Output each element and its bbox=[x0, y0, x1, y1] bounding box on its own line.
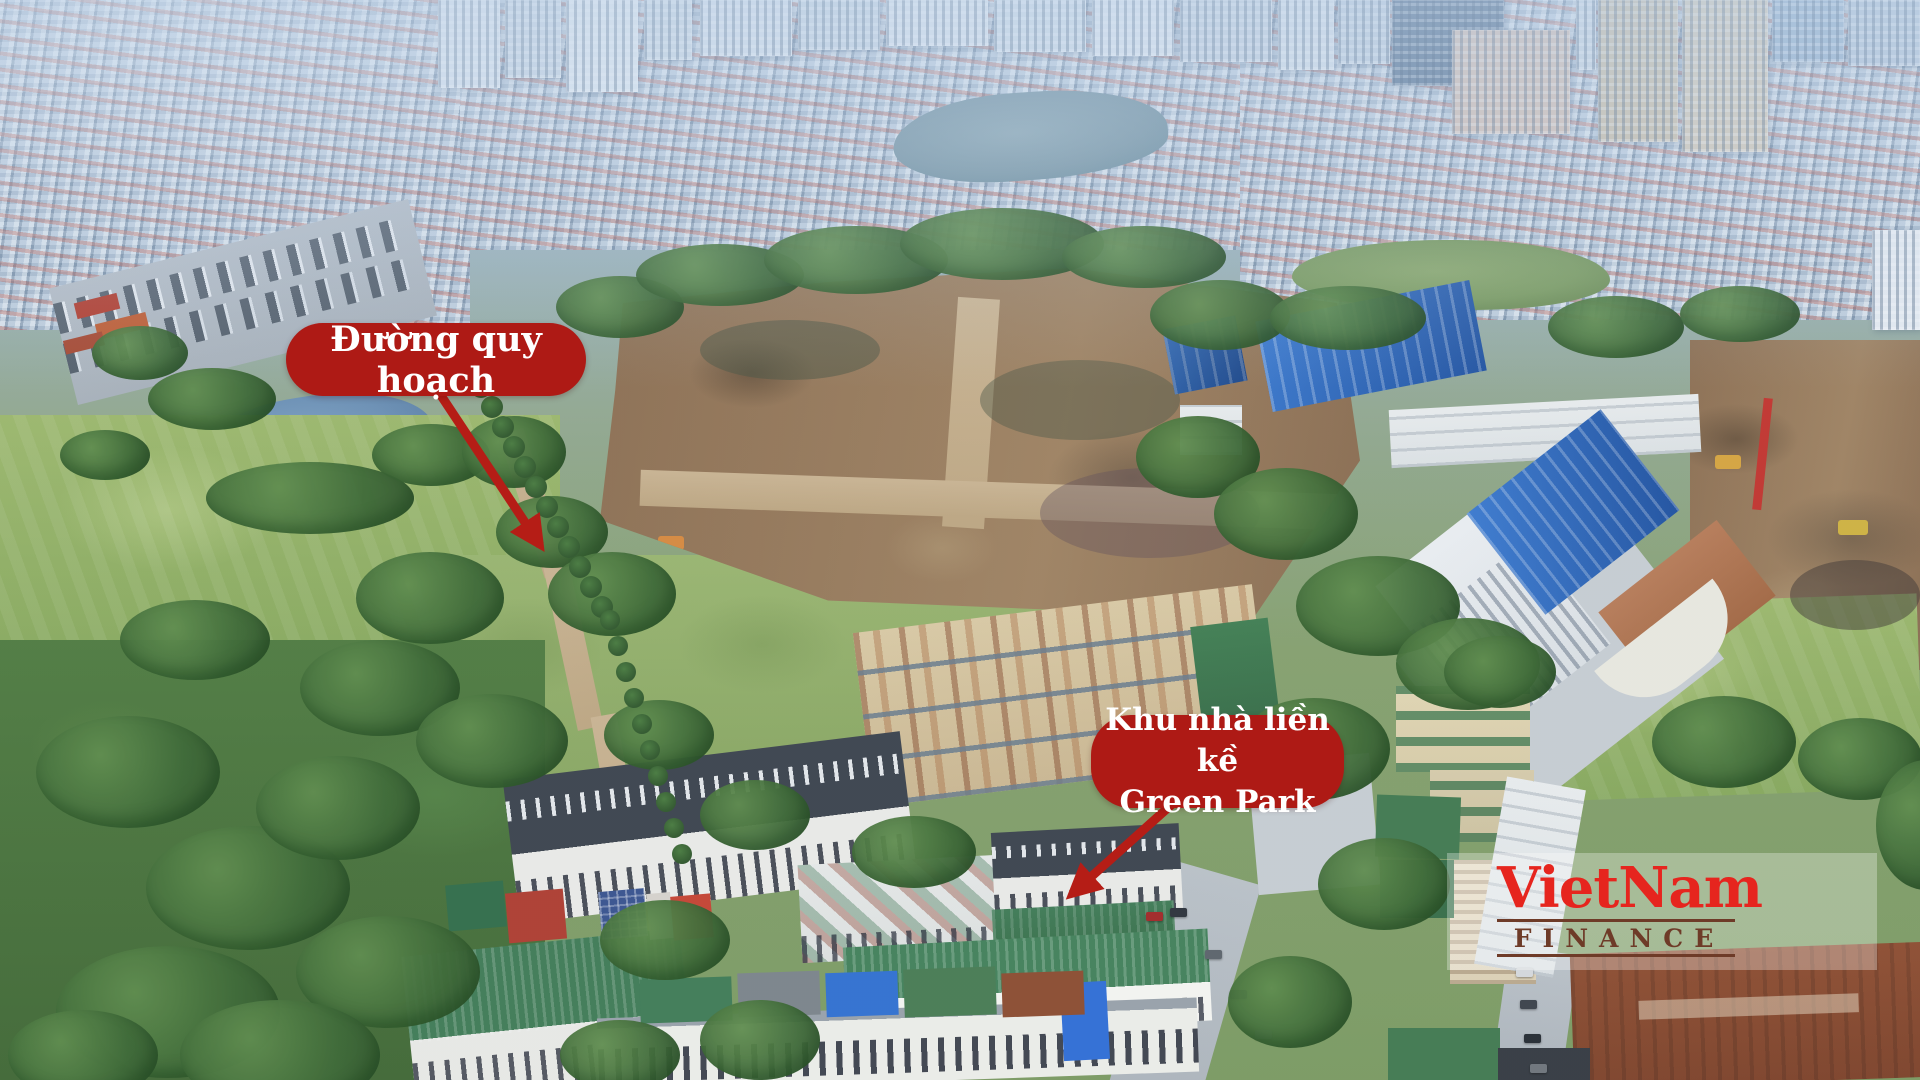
high-rise-tower bbox=[644, 0, 692, 60]
palm-tree bbox=[600, 610, 620, 630]
car bbox=[1524, 1034, 1541, 1043]
tree-cluster bbox=[1548, 296, 1684, 358]
tree-cluster bbox=[148, 368, 276, 430]
callout-green-park-line1: Khu nhà liền kề bbox=[1091, 700, 1344, 782]
tree-cluster bbox=[700, 780, 810, 850]
high-rise-tower bbox=[1598, 0, 1678, 142]
high-rise-tower bbox=[438, 0, 500, 88]
tree-cluster bbox=[416, 694, 568, 788]
palm-tree bbox=[558, 536, 580, 558]
logo-brand-name: VietNam bbox=[1497, 859, 1735, 918]
roof-segment bbox=[1001, 971, 1084, 1018]
high-rise-tower bbox=[1576, 0, 1596, 70]
high-rise-tower bbox=[505, 0, 561, 78]
tree-cluster bbox=[700, 1000, 820, 1080]
high-rise-tower bbox=[1848, 0, 1920, 66]
high-rise-tower bbox=[700, 0, 792, 56]
high-rise-tower bbox=[1872, 230, 1920, 330]
tree-cluster bbox=[356, 552, 504, 644]
high-rise-tower bbox=[798, 0, 880, 50]
tree-cluster bbox=[1652, 696, 1796, 788]
tree-cluster bbox=[1214, 468, 1358, 560]
green-roof-house bbox=[445, 881, 507, 932]
palm-tree bbox=[664, 818, 684, 838]
palm-tree bbox=[547, 516, 569, 538]
car bbox=[1530, 1064, 1547, 1073]
muddy-patch bbox=[1790, 560, 1920, 630]
high-rise-tower bbox=[1092, 0, 1174, 56]
tree-cluster bbox=[256, 756, 420, 860]
callout-planned-road: Đường quy hoạch bbox=[286, 323, 586, 396]
green-roof bbox=[1388, 1028, 1500, 1080]
tree-cluster bbox=[1150, 280, 1290, 350]
muddy-patch bbox=[700, 320, 880, 380]
tree-cluster bbox=[1062, 226, 1226, 288]
high-rise-tower bbox=[994, 0, 1086, 52]
car bbox=[1520, 1000, 1537, 1009]
high-rise-tower bbox=[1772, 0, 1844, 62]
palm-tree bbox=[503, 436, 525, 458]
palm-tree bbox=[608, 636, 628, 656]
palm-tree bbox=[525, 476, 547, 498]
high-rise-tower bbox=[566, 0, 638, 92]
car bbox=[1146, 912, 1163, 921]
palm-tree bbox=[624, 688, 644, 708]
high-rise-tower bbox=[1180, 0, 1272, 62]
palm-tree bbox=[492, 416, 514, 438]
tree-cluster bbox=[1444, 636, 1556, 708]
high-rise-tower bbox=[1682, 0, 1768, 152]
car bbox=[1205, 950, 1222, 959]
high-rise-tower bbox=[1278, 0, 1334, 70]
tree-cluster bbox=[1270, 286, 1426, 350]
palm-tree bbox=[514, 456, 536, 478]
tree-cluster bbox=[600, 900, 730, 980]
roof-segment bbox=[903, 966, 997, 1017]
muddy-patch bbox=[980, 360, 1180, 440]
palm-tree bbox=[648, 766, 668, 786]
palm-tree bbox=[656, 792, 676, 812]
logo-brand-subtitle: FINANCE bbox=[1497, 919, 1735, 957]
tree-cluster bbox=[852, 816, 976, 888]
palm-tree bbox=[536, 496, 558, 518]
high-rise-tower bbox=[886, 0, 988, 46]
palm-tree bbox=[569, 556, 591, 578]
palm-tree bbox=[640, 740, 660, 760]
excavator bbox=[1715, 455, 1741, 469]
callout-green-park: Khu nhà liền kề Green Park bbox=[1091, 715, 1344, 808]
aerial-photo: Đường quy hoạch Khu nhà liền kề Green Pa… bbox=[0, 0, 1920, 1080]
high-rise-tower bbox=[1338, 0, 1390, 64]
palm-tree bbox=[580, 576, 602, 598]
excavator bbox=[1838, 520, 1868, 535]
vietnam-finance-logo: VietNam FINANCE bbox=[1497, 859, 1735, 957]
car bbox=[1170, 908, 1187, 917]
tree-cluster bbox=[1318, 838, 1450, 930]
watermark-band: VietNam FINANCE bbox=[1447, 853, 1877, 970]
roof-segment bbox=[825, 971, 898, 1017]
tree-cluster bbox=[1680, 286, 1800, 342]
tree-cluster bbox=[604, 700, 714, 770]
callout-planned-road-label: Đường quy hoạch bbox=[286, 319, 586, 401]
callout-green-park-line2: Green Park bbox=[1120, 782, 1316, 823]
red-roof-house bbox=[505, 889, 567, 944]
tree-cluster bbox=[1228, 956, 1352, 1048]
palm-tree bbox=[632, 714, 652, 734]
tree-cluster bbox=[92, 326, 188, 380]
tree-cluster bbox=[36, 716, 220, 828]
palm-tree bbox=[672, 844, 692, 864]
tree-cluster bbox=[120, 600, 270, 680]
palm-tree bbox=[616, 662, 636, 682]
excavator bbox=[658, 536, 684, 550]
tree-cluster bbox=[60, 430, 150, 480]
high-rise-tower bbox=[1452, 30, 1570, 134]
